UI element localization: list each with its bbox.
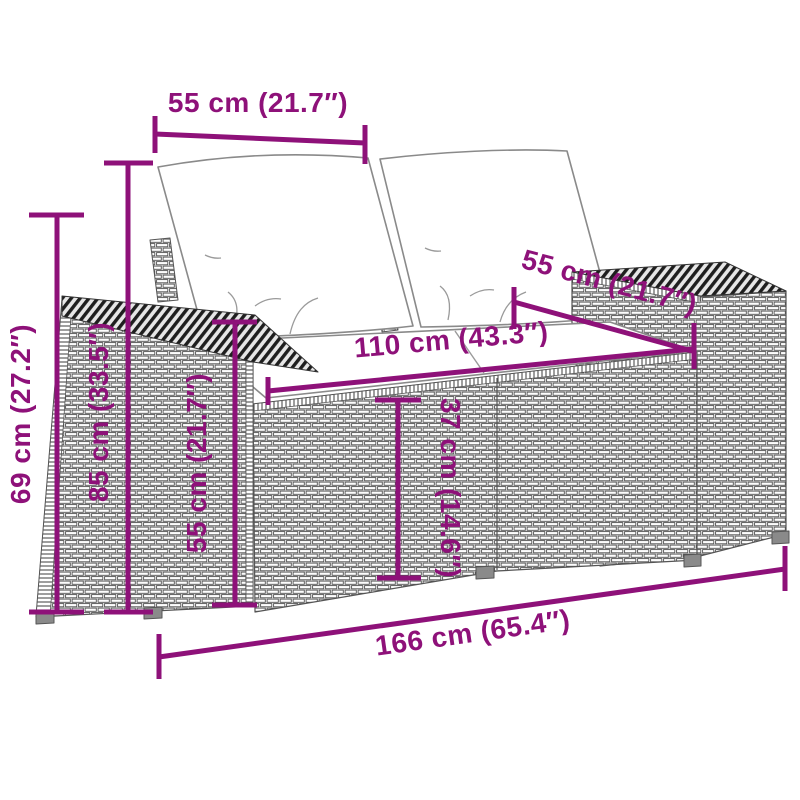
dimension-diagram: 55 cm (21.7″) 69 cm (27.2″) 85 cm (33.5″…	[0, 0, 800, 800]
armrest-left-corner-band	[246, 320, 253, 606]
sofa-dimension-drawing: 55 cm (21.7″) 69 cm (27.2″) 85 cm (33.5″…	[0, 0, 800, 800]
dim-seat-height-label: 37 cm (14.6″)	[435, 398, 466, 578]
dim-cushion-width-label: 55 cm (21.7″)	[168, 87, 348, 118]
dim-back-height-label: 85 cm (33.5″)	[83, 322, 114, 502]
dim-overall-height-label: 69 cm (27.2″)	[5, 324, 36, 504]
dim-arm-height-label: 55 cm (21.7″)	[181, 373, 212, 553]
